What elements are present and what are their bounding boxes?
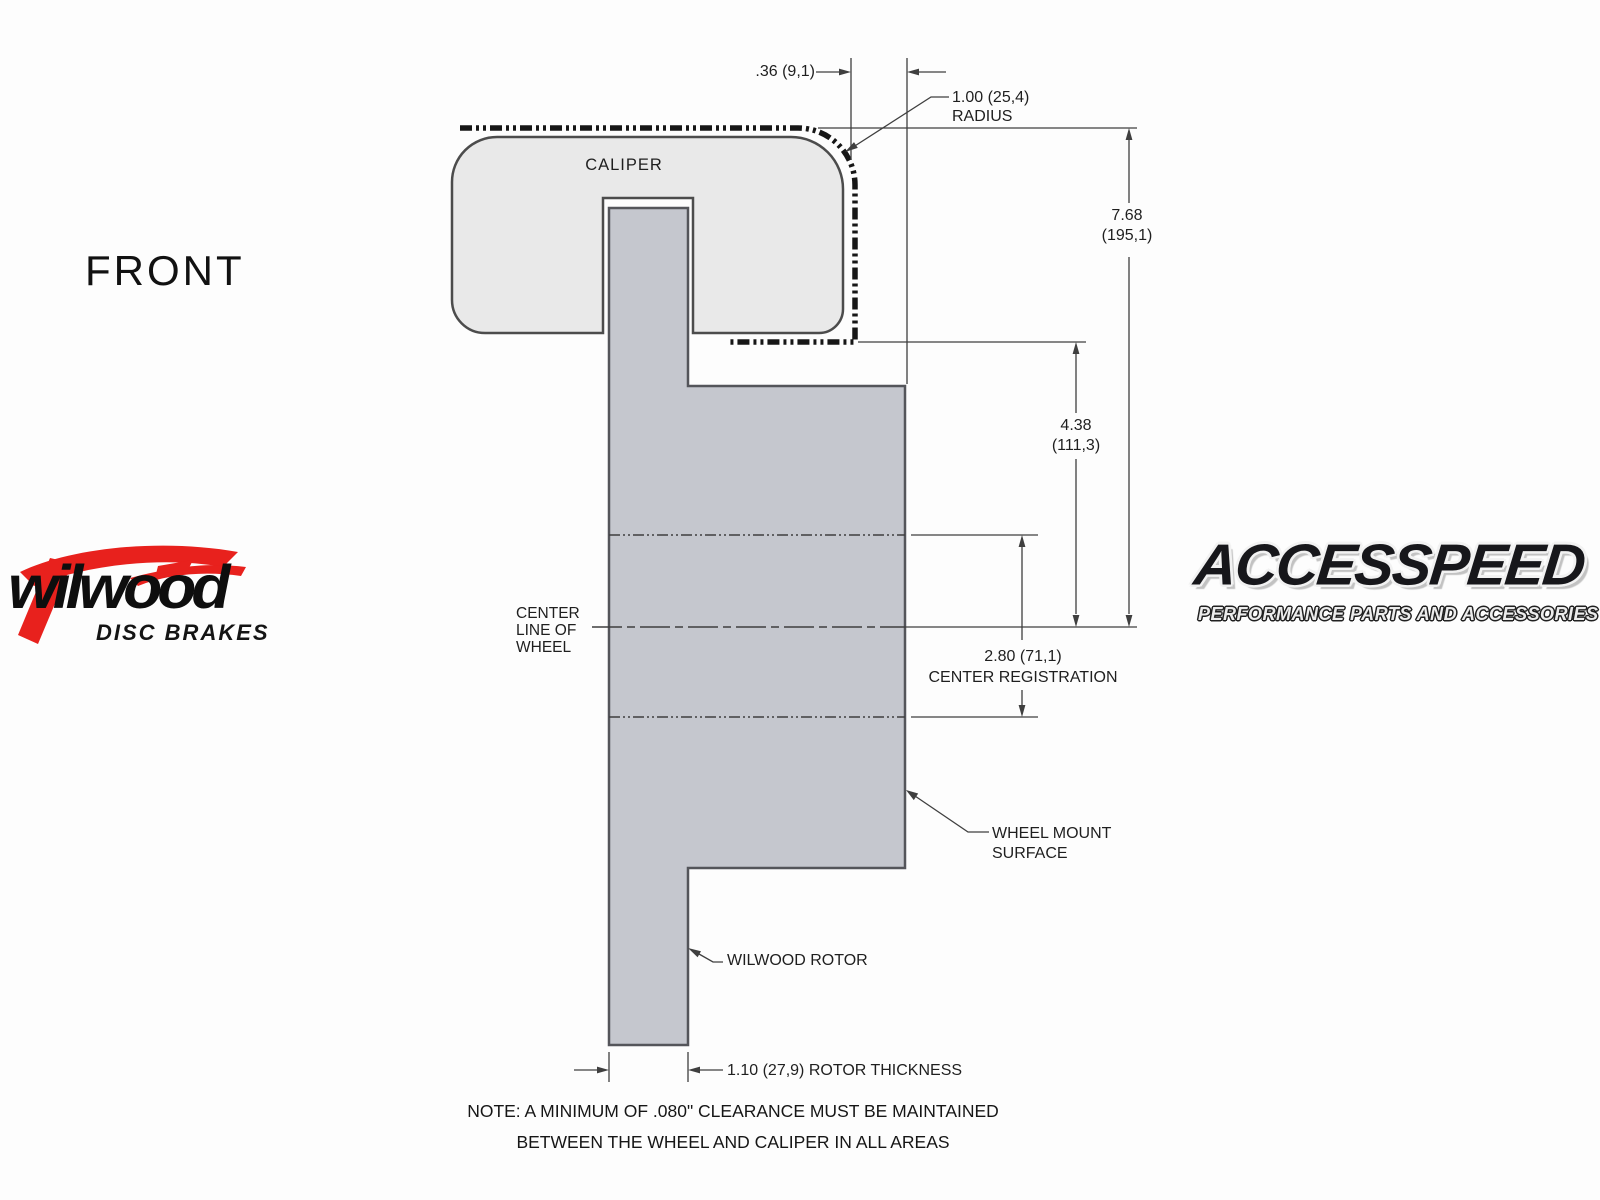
- wilwood-wordmark: wilwood: [8, 552, 225, 622]
- clearance-note-line2: BETWEEN THE WHEEL AND CALIPER IN ALL ARE…: [403, 1127, 1063, 1158]
- accesspeed-logo: ACCESSPEED PERFORMANCE PARTS AND ACCESSO…: [1198, 532, 1598, 652]
- dim-center-registration-word: CENTER REGISTRATION: [912, 667, 1134, 688]
- centerline-label-line2: LINE OF: [516, 622, 580, 639]
- centerline-label: CENTER LINE OF WHEEL: [516, 605, 580, 656]
- centerline-label-line1: CENTER: [516, 605, 580, 622]
- wilwood-tagline: DISC BRAKES: [96, 620, 270, 646]
- dim-radius: 1.00 (25,4) RADIUS: [952, 88, 1029, 126]
- dim-caliper-offset: .36 (9,1): [725, 63, 815, 82]
- dim-rotor-thickness: 1.10 (27,9) ROTOR THICKNESS: [727, 1062, 962, 1081]
- dim-overall-height: 7.68 (195,1): [1082, 206, 1172, 246]
- wheel-mount-label: WHEEL MOUNT SURFACE: [992, 824, 1111, 864]
- dim-mount-to-center: 4.38 (111,3): [1031, 416, 1121, 456]
- clearance-note: NOTE: A MINIMUM OF .080" CLEARANCE MUST …: [403, 1096, 1063, 1158]
- accesspeed-wordmark: ACCESSPEED: [1191, 532, 1574, 598]
- wheel-mount-label-line2: SURFACE: [992, 844, 1111, 864]
- wheel-mount-label-line1: WHEEL MOUNT: [992, 824, 1111, 844]
- dim-radius-word: RADIUS: [952, 107, 1029, 126]
- dim-overall-height-mm: (195,1): [1082, 226, 1172, 246]
- wilwood-logo: wilwood DISC BRAKES: [8, 536, 328, 656]
- clearance-note-line1: NOTE: A MINIMUM OF .080" CLEARANCE MUST …: [403, 1096, 1063, 1127]
- dim-mount-to-center-mm: (111,3): [1031, 436, 1121, 456]
- accesspeed-tagline: PERFORMANCE PARTS AND ACCESSORIES: [1198, 604, 1598, 625]
- centerline-label-line3: WHEEL: [516, 639, 580, 656]
- dim-radius-value: 1.00 (25,4): [952, 88, 1029, 107]
- dim-mount-to-center-in: 4.38: [1031, 416, 1121, 436]
- rotor-label: WILWOOD ROTOR: [727, 952, 868, 971]
- dim-center-registration-value: 2.80 (71,1): [912, 646, 1134, 667]
- drawing-canvas: FRONT CALIPER .36 (9,1) 1.00 (25,4) RADI…: [0, 0, 1600, 1200]
- dim-overall-height-in: 7.68: [1082, 206, 1172, 226]
- dim-center-registration: 2.80 (71,1) CENTER REGISTRATION: [912, 646, 1134, 688]
- view-label: FRONT: [85, 246, 245, 296]
- caliper-label: CALIPER: [554, 156, 694, 175]
